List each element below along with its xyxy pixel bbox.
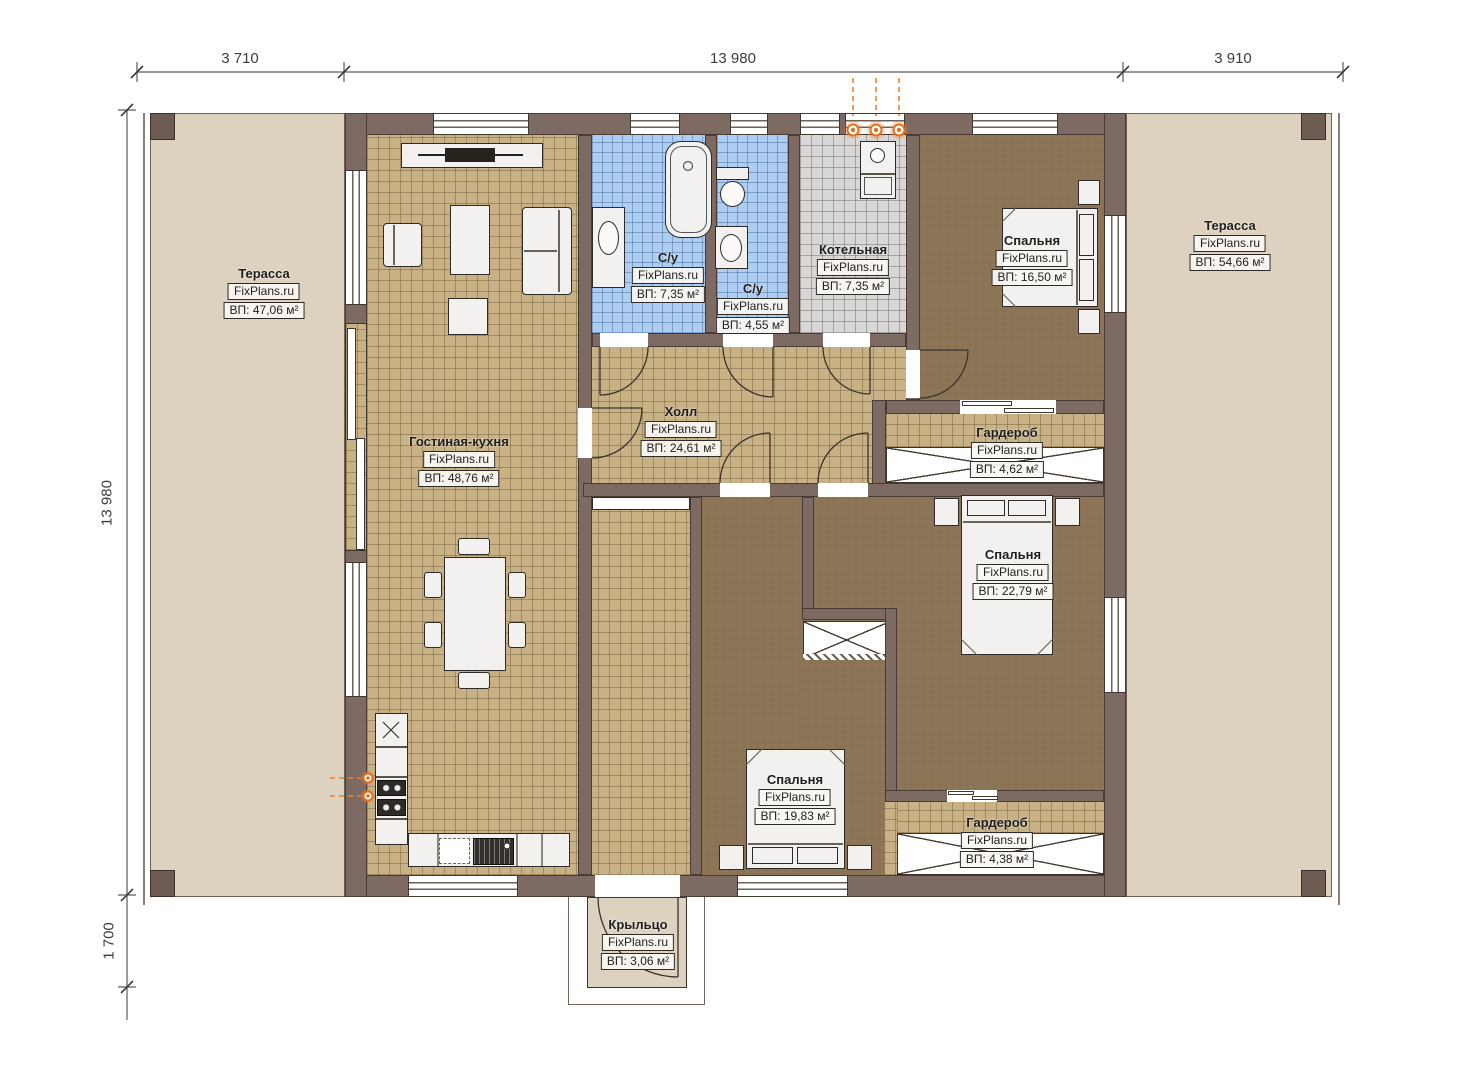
sink-basin-2 [720,234,742,262]
pillow [1008,500,1046,516]
pillar [150,113,175,140]
chair [424,622,442,648]
watermark: FixPlans.ru [977,564,1049,581]
toilet-tank [716,167,749,180]
boiler-panel [864,177,892,195]
room-area: ВП: 7,35 м² [631,286,705,303]
chair [508,622,526,648]
nightstand [1078,180,1100,205]
sliding-door-panel [347,328,356,440]
dimension-top-1: 3 710 [221,50,259,67]
window-living-left-2 [345,562,367,697]
counter-divider [376,746,407,748]
room-label-bedroom-1: Спальня FixPlans.ru ВП: 16,50 м² [992,233,1073,286]
room-name: С/у [743,281,763,296]
watermark: FixPlans.ru [971,442,1043,459]
room-name: Гардероб [976,425,1037,440]
room-area: ВП: 54,66 м² [1190,254,1271,271]
closet-hatch [803,654,890,660]
pillow [967,500,1005,516]
window-living-top [433,113,529,135]
room-label-hall: Холл FixPlans.ru ВП: 24,61 м² [641,404,722,457]
room-area: ВП: 4,55 м² [716,317,790,334]
sofa-back-line [558,210,560,292]
floor-plan: 3 710 13 980 3 910 13 980 1 700 Терасса … [0,0,1473,1080]
watermark: FixPlans.ru [645,421,717,438]
chair [458,538,490,555]
dimension-top-3: 3 910 [1214,50,1252,67]
room-name: Гостиная-кухня [409,434,509,449]
watermark: FixPlans.ru [759,789,831,806]
hall-console [592,497,690,510]
sliding-door-panel [1004,408,1054,413]
room-name: Терасса [238,266,290,281]
coffee-table [450,205,490,275]
room-area: ВП: 24,61 м² [641,440,722,457]
ottoman [448,298,488,335]
room-name: Спальня [1004,233,1060,248]
window-living-left-1 [345,170,367,305]
stove-hob [377,780,406,796]
sliding-door-panel [962,401,1012,406]
room-name: С/у [658,250,678,265]
sliding-door-panel [972,796,998,800]
wall-living-hall [578,135,592,875]
door-bathroom-2 [723,333,773,347]
nightstand [1055,498,1080,526]
pillow [752,847,793,864]
room-label-wardrobe-2: Гардероб FixPlans.ru ВП: 4,38 м² [960,815,1034,868]
watermark: FixPlans.ru [602,934,674,951]
room-label-boiler-room: Котельная FixPlans.ru ВП: 7,35 м² [816,242,890,295]
pillow [797,847,838,864]
chair [458,672,490,689]
counter-divider [541,834,543,866]
pillar [150,870,175,897]
room-label-living-kitchen: Гостиная-кухня FixPlans.ru ВП: 48,76 м² [409,434,509,487]
room-area: ВП: 19,83 м² [755,808,836,825]
pillar [1301,113,1326,140]
dimension-top-2: 13 980 [710,50,756,67]
room-area: ВП: 16,50 м² [992,269,1073,286]
room-name: Спальня [985,547,1041,562]
door-bedroom-1 [906,350,920,398]
door-bedroom-2 [818,483,868,497]
bed-line [963,521,1051,523]
bathtub-inner [670,146,707,233]
armchair [383,223,422,267]
room-label-wardrobe-1: Гардероб FixPlans.ru ВП: 4,62 м² [970,425,1044,478]
room-name: Терасса [1204,218,1256,233]
door-boiler-room [823,333,870,347]
kitchen-sink [473,838,514,865]
nightstand [934,498,959,526]
room-name: Крыльцо [608,917,667,932]
nightstand [719,845,744,870]
stove-hob [377,799,406,816]
bed-line [748,843,843,845]
dimension-left-1: 13 980 [99,480,116,526]
wall-corridor-bedroom3 [690,497,702,875]
room-label-terrace-left: Терасса FixPlans.ru ВП: 47,06 м² [224,266,305,319]
watermark: FixPlans.ru [228,283,300,300]
window-kitchen-bottom [408,875,518,897]
armchair-back-line [393,225,395,265]
room-label-bathroom-1: С/у FixPlans.ru ВП: 7,35 м² [631,250,705,303]
room-name: Гардероб [966,815,1027,830]
door-living-hall [578,408,592,458]
room-label-bathroom-2: С/у FixPlans.ru ВП: 4,55 м² [716,281,790,334]
window-bedroom-2-right [1104,597,1126,693]
room-name: Холл [665,404,698,419]
wall-bedroom3-bedroom2-lower [885,608,897,800]
window-bathroom-1 [630,113,680,135]
watermark: FixPlans.ru [423,451,495,468]
watermark: FixPlans.ru [717,298,789,315]
sliding-door-panel [356,438,365,550]
tv [445,148,495,162]
room-label-terrace-right: Терасса FixPlans.ru ВП: 54,66 м² [1190,218,1271,271]
wall-bedroom3-bedroom2-upper [802,497,814,620]
window-boiler-1 [800,113,840,135]
sofa-cushion-line [524,250,557,252]
watermark: FixPlans.ru [996,250,1068,267]
watermark: FixPlans.ru [961,832,1033,849]
watermark: FixPlans.ru [1194,235,1266,252]
room-area: ВП: 7,35 м² [816,278,890,295]
room-name: Спальня [767,772,823,787]
window-bedroom-3-bottom [737,875,848,897]
pillow [1079,214,1094,256]
room-name: Котельная [819,242,887,257]
kitchen-counter-left [375,713,408,845]
sink-basin-1 [598,221,619,255]
counter-divider [376,818,407,820]
chair [508,572,526,598]
room-area: ВП: 48,76 м² [419,470,500,487]
wall-stub [802,608,897,620]
watermark: FixPlans.ru [817,259,889,276]
door-bedroom-3 [720,483,770,497]
window-bedroom-1-right [1104,215,1126,313]
dishwasher [439,838,470,864]
pillar [1301,870,1326,897]
room-area: ВП: 47,06 м² [224,302,305,319]
pillow [1079,259,1094,301]
room-area: ВП: 4,38 м² [960,851,1034,868]
window-bedroom-1-top [972,113,1058,135]
boiler-dial [870,148,885,163]
terrace-outline-left [143,113,145,905]
room-label-bedroom-2: Спальня FixPlans.ru ВП: 22,79 м² [973,547,1054,600]
counter-divider [516,834,518,866]
counter-divider [376,776,407,778]
watermark: FixPlans.ru [632,267,704,284]
room-area: ВП: 3,06 м² [601,953,675,970]
terrace-outline-right [1338,113,1340,905]
window-bathroom-2 [730,113,768,135]
room-label-bedroom-3: Спальня FixPlans.ru ВП: 19,83 м² [755,772,836,825]
dining-table [444,557,506,671]
door-entrance [595,875,680,897]
toilet-bowl [720,181,745,207]
floor-terrace-left [150,113,345,897]
bed-line [1076,210,1078,305]
nightstand [1078,309,1100,334]
door-bathroom-1 [600,333,648,347]
room-label-porch: Крыльцо FixPlans.ru ВП: 3,06 м² [601,917,675,970]
chair [424,572,442,598]
window-boiler-2 [845,113,905,135]
room-area: ВП: 22,79 м² [973,583,1054,600]
nightstand [847,845,872,870]
sliding-door-panel [948,791,974,795]
dimension-left-2: 1 700 [101,922,118,960]
room-area: ВП: 4,62 м² [970,461,1044,478]
boiler-divider [861,173,895,175]
